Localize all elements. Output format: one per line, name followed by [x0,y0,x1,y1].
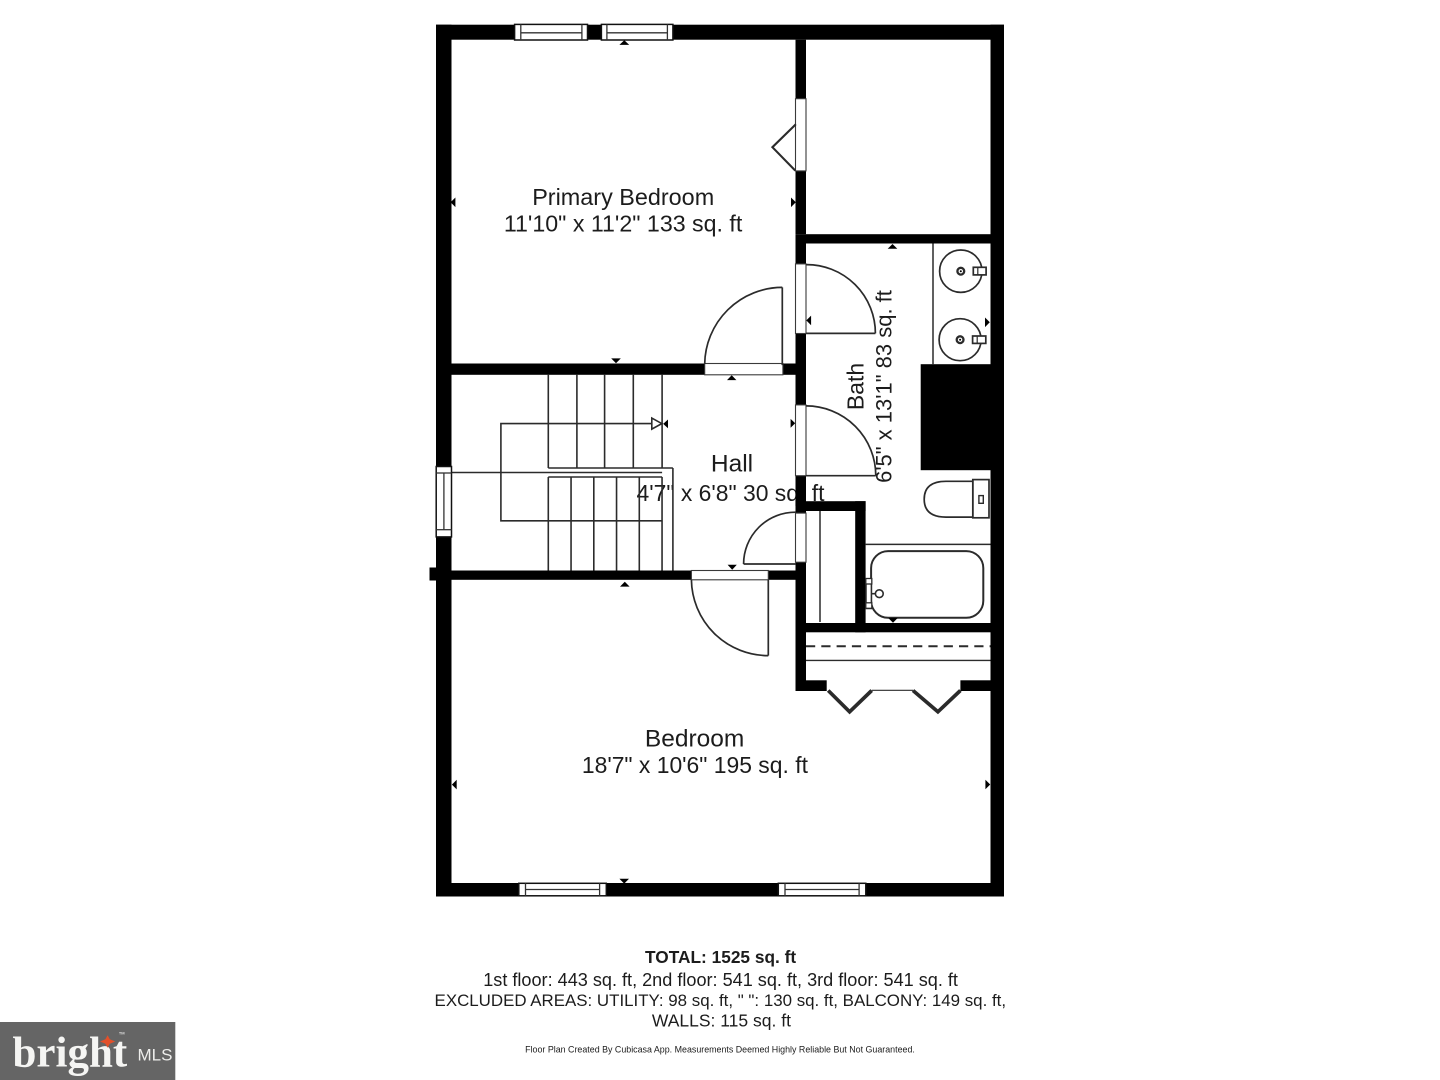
svg-text:11'10" x 11'2" 133 sq. ft: 11'10" x 11'2" 133 sq. ft [504,211,743,237]
svg-text:EXCLUDED AREAS: UTILITY: 98 sq: EXCLUDED AREAS: UTILITY: 98 sq. ft, " ":… [435,991,1007,1010]
svg-text:Floor Plan Created By Cubicasa: Floor Plan Created By Cubicasa App. Meas… [525,1045,915,1055]
svg-text:18'7" x 10'6" 195 sq. ft: 18'7" x 10'6" 195 sq. ft [582,752,809,778]
svg-text:™: ™ [119,1032,126,1039]
svg-text:Hall: Hall [711,450,753,477]
svg-text:MLS: MLS [138,1045,173,1064]
svg-text:WALLS: 115 sq. ft: WALLS: 115 sq. ft [652,1011,791,1031]
svg-text:1st floor: 443 sq. ft, 2nd flo: 1st floor: 443 sq. ft, 2nd floor: 541 sq… [483,970,958,990]
svg-text:bright: bright [13,1030,128,1077]
svg-text:TOTAL: 1525 sq. ft: TOTAL: 1525 sq. ft [645,947,796,967]
svg-text:6'5" x 13'1" 83 sq. ft: 6'5" x 13'1" 83 sq. ft [871,290,896,483]
svg-text:Primary Bedroom: Primary Bedroom [532,184,714,210]
svg-text:Bedroom: Bedroom [645,725,744,752]
svg-text:Bath: Bath [843,363,869,410]
